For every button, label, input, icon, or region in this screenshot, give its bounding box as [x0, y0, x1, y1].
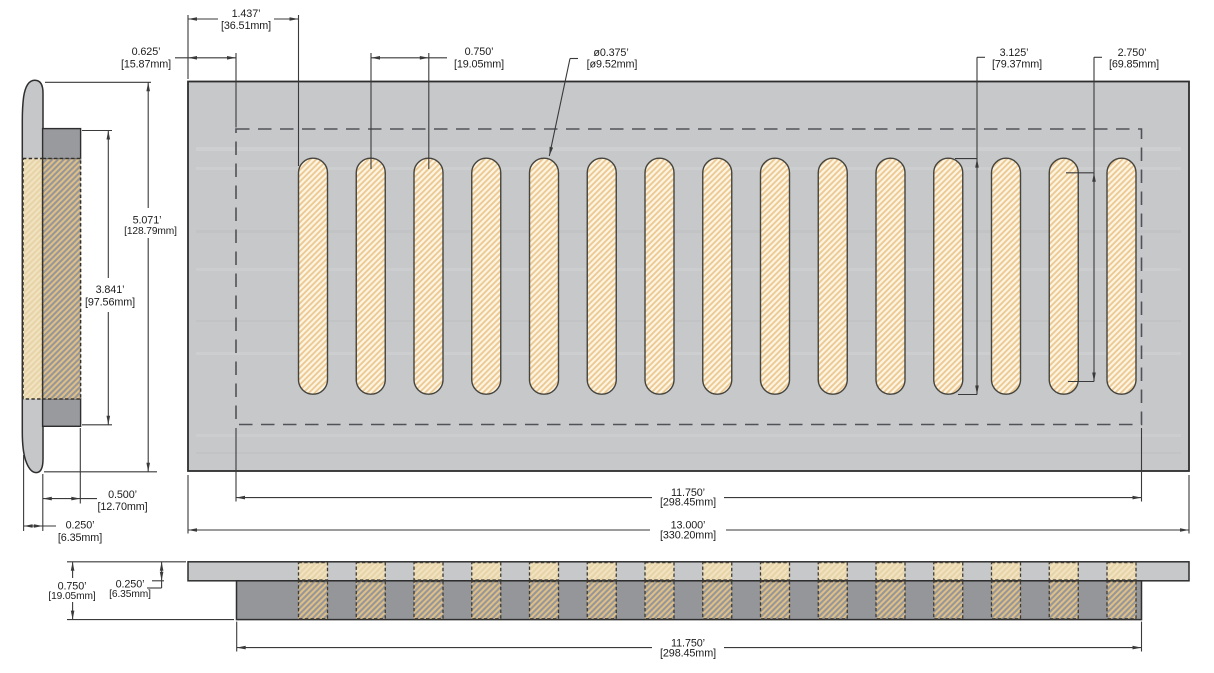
svg-text:[6.35mm]: [6.35mm]: [109, 589, 151, 600]
svg-text:0.250’: 0.250’: [66, 520, 95, 532]
svg-text:1.437’: 1.437’: [232, 8, 261, 20]
svg-text:0.750’: 0.750’: [465, 46, 494, 58]
svg-text:[12.70mm]: [12.70mm]: [97, 501, 147, 513]
svg-text:2.750’: 2.750’: [1118, 47, 1147, 59]
svg-text:[19.05mm]: [19.05mm]: [48, 591, 95, 602]
svg-text:0.500’: 0.500’: [108, 489, 137, 501]
svg-text:3.125’: 3.125’: [1000, 47, 1029, 59]
svg-text:ø0.375’: ø0.375’: [593, 47, 628, 59]
svg-text:5.071’: 5.071’: [133, 215, 162, 227]
svg-text:[15.87mm]: [15.87mm]: [121, 58, 171, 70]
svg-text:0.625’: 0.625’: [132, 46, 161, 58]
svg-text:[298.45mm]: [298.45mm]: [660, 647, 716, 659]
svg-text:[ø9.52mm]: [ø9.52mm]: [587, 58, 638, 70]
svg-text:[19.05mm]: [19.05mm]: [454, 58, 504, 70]
svg-text:3.841’: 3.841’: [96, 284, 125, 296]
svg-text:[128.79mm]: [128.79mm]: [124, 226, 177, 237]
svg-text:[298.45mm]: [298.45mm]: [660, 497, 716, 509]
svg-text:[330.20mm]: [330.20mm]: [660, 530, 716, 542]
svg-text:[36.51mm]: [36.51mm]: [221, 20, 271, 32]
svg-text:[69.85mm]: [69.85mm]: [1109, 58, 1159, 70]
svg-text:[6.35mm]: [6.35mm]: [58, 532, 102, 544]
svg-text:[97.56mm]: [97.56mm]: [85, 296, 135, 308]
svg-text:[79.37mm]: [79.37mm]: [992, 58, 1042, 70]
